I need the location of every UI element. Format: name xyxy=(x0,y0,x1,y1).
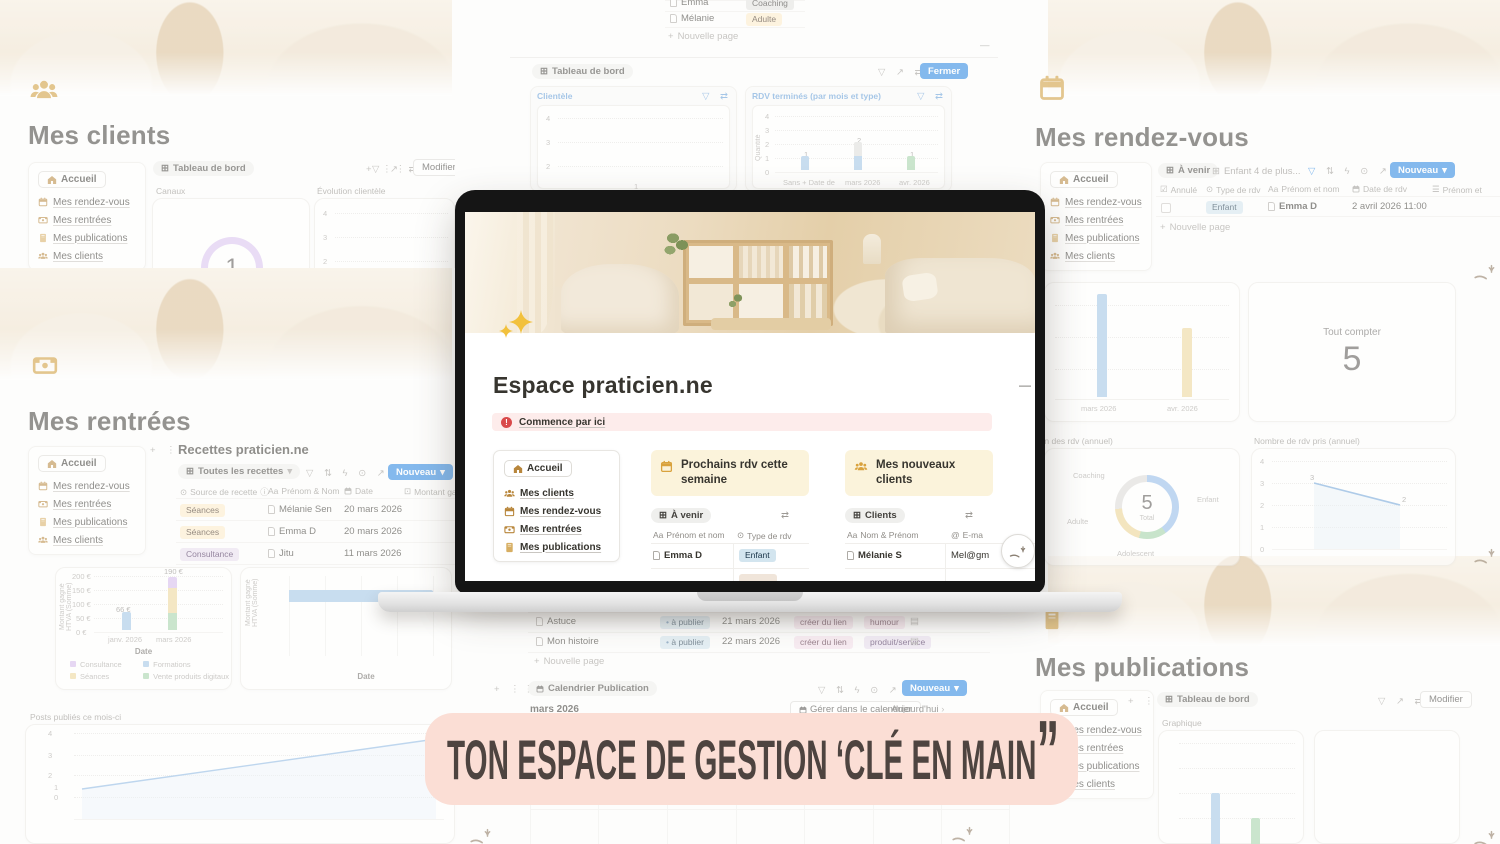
sidebar-item-clients[interactable]: Mes clients xyxy=(38,251,136,262)
y-tick: 1 xyxy=(765,154,769,163)
cover-armchair xyxy=(561,264,679,333)
col-date[interactable]: Date de rdv xyxy=(1352,184,1407,194)
nouveau-button[interactable]: Nouveau▾ xyxy=(902,680,967,696)
sidebar-item-rendez-vous[interactable]: Mes rendez-vous xyxy=(38,481,136,492)
photo-mid-left xyxy=(0,268,452,380)
row-name[interactable]: Jitu xyxy=(268,548,294,559)
checkbox-icon: ☑ xyxy=(1160,184,1168,195)
page-icon xyxy=(847,551,854,560)
doodle-icon xyxy=(1472,824,1498,844)
row-type-tag[interactable]: Enfant xyxy=(739,549,776,562)
page-icon xyxy=(536,617,543,626)
modifier-button[interactable]: Modifier xyxy=(1420,691,1472,708)
row-tag2[interactable]: humour xyxy=(864,616,905,629)
donut-label-adolescent: Adolescent xyxy=(1117,549,1154,558)
bar-seg-formations xyxy=(122,612,131,630)
template-badge xyxy=(1001,534,1035,568)
view-tab-toutes-recettes[interactable]: ⊞Toutes les recettes▾ xyxy=(178,464,300,479)
bar-seg xyxy=(801,156,809,170)
doodle-icon xyxy=(1472,258,1498,284)
alert-icon: ! xyxy=(501,417,512,428)
accueil-button[interactable]: Accueil xyxy=(1050,171,1118,188)
row-name[interactable]: Mon histoire xyxy=(536,636,599,647)
row-date[interactable]: 22 mars 2026 xyxy=(722,636,780,647)
y-tick: 4 xyxy=(1260,457,1264,466)
nav-item-rendez-vous[interactable]: Mes rendez-vous xyxy=(504,506,609,517)
y-axis-label: Quantité xyxy=(755,120,762,176)
page-icon xyxy=(670,0,677,7)
sidebar-card: Accueil Mes rendez-vous Mes rentrées Mes… xyxy=(28,162,146,268)
y-tick: 150 € xyxy=(72,586,91,595)
new-page-row[interactable]: +Nouvelle page xyxy=(1160,222,1230,233)
row-name[interactable]: Mélanie Sen xyxy=(268,504,332,515)
legend-item: Vente produits digitaux xyxy=(143,672,229,681)
table-icon: ⊞ xyxy=(1212,166,1220,177)
page-icon xyxy=(268,527,275,536)
doodle-icon xyxy=(468,822,494,844)
plus-icon: + xyxy=(1160,222,1166,233)
y-tick: 3 xyxy=(1260,479,1264,488)
col-prenom[interactable]: AaPrénom et nom xyxy=(653,530,725,540)
chart-title-posts: Graphique xyxy=(1162,718,1202,728)
sidebar-item-rendez-vous[interactable]: Mes rendez-vous xyxy=(1050,197,1142,208)
new-page-row[interactable]: +Nouvelle page xyxy=(534,656,604,667)
cover-plant2 xyxy=(727,290,749,310)
page-icon xyxy=(268,549,275,558)
clientele-chart-card: Clientèle ▽ ⇄ 4 3 2 1 xyxy=(530,86,737,192)
col-source[interactable]: ⊙Source de recetteⓘ xyxy=(180,486,269,498)
bar-seg xyxy=(907,156,915,170)
x-tick: mars 2026 xyxy=(156,635,191,644)
database-title: Recettes praticien.ne xyxy=(178,442,309,457)
text-icon: Aa xyxy=(847,530,857,540)
y-tick: 2 xyxy=(546,162,550,171)
chart-title-evolution: Évolution clientèle xyxy=(317,186,386,196)
chevron-down-icon: ▾ xyxy=(440,467,445,478)
page-icon xyxy=(1268,202,1275,211)
y-tick: 0 xyxy=(54,793,58,802)
x-axis-label: Date xyxy=(56,647,231,656)
clients-group-icon xyxy=(24,76,64,104)
y-tick: 4 xyxy=(323,209,327,218)
laptop-base-notch xyxy=(697,592,803,601)
chevron-down-icon: ▾ xyxy=(1442,165,1447,176)
row-date[interactable]: 20 mars 2026 xyxy=(344,526,402,537)
col-type[interactable]: ⊙Type de rdv xyxy=(1206,184,1261,195)
evolution-chart-card: 4 3 2 xyxy=(314,198,455,268)
y-tick: 2 xyxy=(765,140,769,149)
y-tick: 0 xyxy=(1260,545,1264,554)
view-tab-more[interactable]: 4 de plus... xyxy=(1254,166,1300,177)
cover-table xyxy=(711,318,831,330)
bar-seg-vente xyxy=(168,613,177,630)
row-source-tag[interactable]: Séances xyxy=(180,504,225,517)
tab-tableau-de-bord[interactable]: ⊞Tableau de bord xyxy=(153,161,254,176)
repartition-chart-card: 5Total Coaching Enfant Adulte Adolescent xyxy=(1044,448,1240,566)
row-tag[interactable]: Adulte xyxy=(746,13,782,26)
accueil-button[interactable]: Accueil xyxy=(38,171,106,188)
modifier-button[interactable]: Modifier xyxy=(413,159,455,176)
donut-center-sub: Total xyxy=(1140,515,1155,522)
x-tick: mars 2026 xyxy=(1081,404,1116,413)
y-tick: 3 xyxy=(323,233,327,242)
callout-commence[interactable]: ! Commence par ici xyxy=(492,413,992,431)
section-title: Mes rendez-vous xyxy=(1035,122,1249,153)
tab-tableau-de-bord[interactable]: ⊞Tableau de bord xyxy=(532,64,633,79)
nouveau-button[interactable]: Nouveau▾ xyxy=(1390,162,1455,178)
row-name[interactable]: Emma D xyxy=(268,526,316,537)
x-tick: Sans + Date de xyxy=(783,178,835,187)
row-name[interactable]: Emma D xyxy=(1268,201,1317,212)
col-prenom2[interactable]: ☰Prénom et xyxy=(1432,184,1482,195)
tab-tableau-de-bord[interactable]: ⊞Tableau de bord xyxy=(1157,692,1258,707)
page-icon xyxy=(653,551,660,560)
rdv-termines-chart-card: RDV terminés (par mois et type) ▽ ⇄ Quan… xyxy=(745,86,952,192)
col-email[interactable]: @E-ma xyxy=(951,530,983,540)
row-name[interactable]: Mélanie xyxy=(670,13,714,24)
board-icon: ⊞ xyxy=(540,66,548,77)
y-tick: 0 xyxy=(765,168,769,177)
chart-filter-icons[interactable]: ▽ ⇄ xyxy=(702,91,732,102)
text-icon: Aa xyxy=(653,530,663,540)
graphique-chart-card xyxy=(1314,730,1460,844)
row-date[interactable]: 20 mars 2026 xyxy=(344,504,402,515)
view-tab-clients[interactable]: ⊞Clients xyxy=(845,508,905,523)
page-icon xyxy=(670,14,677,23)
y-tick: 1 xyxy=(1260,523,1264,532)
section-mes-rentrees: Mes rentrées Accueil Mes rendez-vous Mes… xyxy=(20,398,460,844)
col-type[interactable]: ⊙Type de rdv xyxy=(737,530,792,541)
page-icon xyxy=(268,505,275,514)
chevron-down-icon: ▾ xyxy=(954,683,959,694)
sidebar-item-publications[interactable]: Mes publications xyxy=(1050,233,1142,244)
legend-item: Séances xyxy=(70,672,143,681)
callout-nouveaux-clients[interactable]: Mes nouveaux clients xyxy=(845,450,993,496)
row-source-tag[interactable]: Séances xyxy=(180,526,225,539)
chart-title-rdv-termines: RDV terminés (par mois et type) xyxy=(752,91,881,101)
laptop-screen: Espace praticien.ne — ! Commence par ici… xyxy=(465,212,1035,581)
tout-compter-value: 5 xyxy=(1249,340,1455,379)
bar-posts-2 xyxy=(1251,818,1260,844)
rdv-month-chart-card: 3 2 mars 2026 avr. 2026 xyxy=(1044,282,1240,422)
chart-filter-icons[interactable]: ▽ ⇄ xyxy=(917,91,947,102)
board-icon: ⊞ xyxy=(1165,694,1173,705)
row-name[interactable]: Mélanie S xyxy=(847,550,902,561)
sidebar-item-rendez-vous[interactable]: Mes rendez-vous xyxy=(38,197,136,208)
callout-title: Mes nouveaux clients xyxy=(876,458,984,488)
y-tick: 100 € xyxy=(72,600,91,609)
nb-rdv-chart-card: 4 3 2 1 0 3 2 xyxy=(1251,448,1456,566)
col-date[interactable]: Date xyxy=(344,486,373,496)
photo-top-right xyxy=(1048,0,1500,96)
montant-tva-chart-card: Montant gagné HTVA (Somme) Date xyxy=(240,567,452,690)
row-attachment-icon: ▤ xyxy=(910,616,923,627)
cover-lamp xyxy=(863,234,881,264)
nb-rdv-line xyxy=(1272,457,1449,549)
tab-calendrier-publication[interactable]: Calendrier Publication xyxy=(528,681,657,696)
section-top-center: Emma Coaching Mélanie Adulte +Nouvelle p… xyxy=(490,0,1010,192)
canaux-donut: 1 xyxy=(201,237,263,268)
accueil-button[interactable]: Accueil xyxy=(38,455,106,472)
row-type-tag[interactable]: Enfant xyxy=(1206,201,1243,214)
number-icon: ⊡ xyxy=(404,486,411,497)
accueil-button[interactable]: Accueil xyxy=(504,460,572,477)
y-tick: 4 xyxy=(48,729,52,738)
y-tick: 4 xyxy=(765,112,769,121)
wallet-corner-icon xyxy=(26,352,64,378)
y-tick: 50 € xyxy=(76,614,91,623)
row-date[interactable]: 21 mars 2026 xyxy=(722,616,780,627)
view-tab-a-venir[interactable]: ⊞À venir xyxy=(1158,163,1218,178)
view-options-icon[interactable]: ⇄ xyxy=(781,510,793,521)
section-mes-rendez-vous: Mes rendez-vous Accueil Mes rendez-vous … xyxy=(1032,116,1500,568)
x-tick: janv. 2026 xyxy=(108,635,142,644)
sparkles-icon xyxy=(499,310,535,346)
select-icon: ⊙ xyxy=(180,487,187,498)
row-name[interactable]: Emma xyxy=(670,0,708,8)
row-status-tag[interactable]: • à publier xyxy=(660,636,710,649)
callout-prochains-rdv[interactable]: Prochains rdv cette semaine xyxy=(651,450,809,496)
chart-title-toutes-recettes: Posts publiés ce mois-ci xyxy=(30,712,121,722)
plus-icon: + xyxy=(668,31,674,42)
row-date[interactable]: 11 mars 2026 xyxy=(344,548,401,559)
x-tick: avr. 2026 xyxy=(1167,404,1198,413)
row-checkbox[interactable] xyxy=(1161,203,1171,213)
doodle-icon xyxy=(950,820,976,844)
sidebar-item-clients[interactable]: Mes clients xyxy=(1050,251,1142,262)
collapse-icon[interactable]: — xyxy=(1019,378,1031,392)
y-tick: 4 xyxy=(546,114,550,123)
tout-compter-label: Tout compter xyxy=(1249,327,1455,338)
callout-text[interactable]: Commence par ici xyxy=(519,417,605,428)
view-options-icon[interactable]: ⇄ xyxy=(965,510,977,521)
sidebar-item-clients[interactable]: Mes clients xyxy=(38,535,136,546)
sidebar-card: Accueil Mes rendez-vous Mes rentrées Mes… xyxy=(28,446,146,555)
donut-center-value: 5 xyxy=(1141,492,1152,515)
section-mes-publications: Mes publications Accueil Mes rendez-vous… xyxy=(1032,646,1500,844)
bar-posts-1 xyxy=(1211,793,1220,844)
legend-item: Consultance xyxy=(70,660,143,669)
donut-label-enfant: Enfant xyxy=(1197,495,1219,504)
x-tick: avr. 2026 xyxy=(899,178,930,187)
bar-mars xyxy=(1097,294,1107,398)
minimize-icon[interactable]: — xyxy=(980,40,994,51)
sidebar-item-rentrees[interactable]: Mes rentrées xyxy=(1050,215,1142,226)
toutes-recettes-chart-card: 4 3 2 1 0 xyxy=(25,724,455,844)
x-axis-label: Date xyxy=(281,672,451,681)
section-title: Mes clients xyxy=(28,120,170,151)
cover-plant xyxy=(661,228,691,262)
y-axis-label: Montant gagné HTVA (Somme) xyxy=(59,576,73,638)
cover-shelf xyxy=(683,240,833,326)
repartition-donut: 5Total xyxy=(1115,475,1179,539)
sidebar-item-publications[interactable]: Mes publications xyxy=(38,517,136,528)
row-tag1[interactable]: créer du lien xyxy=(794,636,853,649)
legend-item: Formations xyxy=(143,660,229,669)
montant-gagne-chart-card: Montant gagné HTVA (Somme) 200 € 150 € 1… xyxy=(55,567,232,690)
view-tab-a-venir[interactable]: ⊞À venir xyxy=(651,508,711,523)
fermer-button[interactable]: Fermer xyxy=(920,63,968,79)
col-annule[interactable]: ☑Annulé xyxy=(1160,184,1197,195)
text-icon: Aa xyxy=(1268,184,1278,194)
y-tick: 3 xyxy=(48,751,52,760)
chevron-down-icon: ▾ xyxy=(287,466,292,477)
chart-title-clientele: Clientèle xyxy=(537,91,572,101)
nav-item-publications[interactable]: Mes publications xyxy=(504,542,609,553)
row-email[interactable]: Mel@gm xyxy=(951,550,989,561)
sidebar-item-publications[interactable]: Mes publications xyxy=(38,233,136,244)
view-tab-enfant[interactable]: ⊞Enfant xyxy=(1212,166,1251,177)
posts-chart-card xyxy=(1158,730,1304,844)
canaux-value: 1 xyxy=(225,254,238,268)
sidebar-item-rentrees[interactable]: Mes rentrées xyxy=(38,499,136,510)
row-date[interactable]: 2 avril 2026 11:00 xyxy=(1352,201,1427,212)
canaux-chart-card: 1 xyxy=(152,198,310,268)
bar-avril xyxy=(1182,328,1192,397)
home-nav-card: Accueil Mes clients Mes rendez-vous Mes … xyxy=(493,450,620,562)
donut-label-coaching: Coaching xyxy=(1073,471,1105,480)
accueil-button[interactable]: Accueil xyxy=(1050,699,1118,716)
chart-title-canaux: Canaux xyxy=(156,186,185,196)
tout-compter-card: Tout compter 5 xyxy=(1248,282,1456,422)
y-tick: 1 xyxy=(54,783,58,792)
point-label: 2 xyxy=(1402,495,1406,504)
rollup-icon: ☰ xyxy=(1432,184,1440,195)
title-banner: TON ESPACE DE GESTION ‘CLÉ EN MAIN” xyxy=(425,713,1078,805)
row-name[interactable]: Astuce xyxy=(536,616,576,627)
section-mes-clients: Mes clients Accueil Mes rendez-vous Mes … xyxy=(20,106,455,268)
chart-title-nb-rdv: Nombre de rdv pris (annuel) xyxy=(1254,436,1360,446)
y-tick: 200 € xyxy=(72,572,91,581)
board-icon: ⊞ xyxy=(161,163,169,174)
doodle-icon xyxy=(1472,542,1498,568)
row-tag1[interactable]: créer du lien xyxy=(794,616,853,629)
table-icon: ⊞ xyxy=(853,510,861,521)
nouveau-button[interactable]: Nouveau▾ xyxy=(388,464,453,480)
select-icon: ⊙ xyxy=(1206,184,1213,195)
nav-item-rentrees[interactable]: Mes rentrées xyxy=(504,524,609,535)
photo-top-left xyxy=(0,0,452,96)
page-icon xyxy=(536,637,543,646)
col-nom[interactable]: AaPrénom & Nom xyxy=(268,486,340,496)
col-montant[interactable]: ⊡Montant gag xyxy=(404,486,461,497)
calendar-corner-icon xyxy=(1037,74,1067,102)
section-title: Mes publications xyxy=(1035,652,1249,683)
y-tick: 2 xyxy=(48,771,52,780)
y-tick: 0 € xyxy=(76,628,86,637)
text-icon: Aa xyxy=(268,486,278,496)
row-attachment-icon: ▤ xyxy=(910,636,923,647)
row-name[interactable]: Emma D xyxy=(653,550,702,561)
y-tick: 3 xyxy=(546,138,550,147)
row-tag[interactable]: Coaching xyxy=(746,0,794,10)
y-axis-label: Montant gagné HTVA (Somme) xyxy=(245,578,259,628)
table-icon: ⊞ xyxy=(186,466,194,477)
sidebar-item-rentrees[interactable]: Mes rentrées xyxy=(38,215,136,226)
banner-text: TON ESPACE DE GESTION ‘CLÉ EN MAIN” xyxy=(447,705,1059,814)
bar-seg xyxy=(854,156,862,170)
recettes-line xyxy=(74,729,446,819)
donut-label-adulte: Adulte xyxy=(1067,517,1088,526)
row-source-tag[interactable]: Consultance xyxy=(180,548,239,561)
point-label: 3 xyxy=(1310,473,1314,482)
callout-title: Prochains rdv cette semaine xyxy=(681,458,800,488)
table-icon: ⊞ xyxy=(659,510,667,521)
new-page-row[interactable]: +Nouvelle page xyxy=(668,31,738,42)
y-tick: 3 xyxy=(765,126,769,135)
row-status-tag[interactable]: • à publier xyxy=(660,616,710,629)
select-icon: ⊙ xyxy=(737,530,744,541)
graphique-donut xyxy=(1357,755,1421,819)
email-icon: @ xyxy=(951,530,960,540)
page-canvas: Mes clients Accueil Mes rendez-vous Mes … xyxy=(0,0,1500,844)
row-type-tag-partial[interactable] xyxy=(739,574,777,581)
plus-icon: + xyxy=(534,656,540,667)
page-title: Espace praticien.ne xyxy=(493,372,713,399)
y-tick: 2 xyxy=(1260,501,1264,510)
nav-item-clients[interactable]: Mes clients xyxy=(504,488,609,499)
sidebar-card: Accueil Mes rendez-vous Mes rentrées Mes… xyxy=(1040,162,1152,271)
bar-seg xyxy=(854,142,862,156)
cover-image xyxy=(465,212,1035,333)
bar-seg-seances xyxy=(168,588,177,613)
x-tick: mars 2026 xyxy=(845,178,880,187)
table-icon: ⊞ xyxy=(1166,165,1174,176)
y-tick: 2 xyxy=(323,257,327,266)
col-prenom[interactable]: AaPrénom et nom xyxy=(1268,184,1340,194)
bar-seg-consultance xyxy=(168,577,177,588)
col-nom[interactable]: AaNom & Prénom xyxy=(847,530,919,540)
section-title: Mes rentrées xyxy=(28,406,191,437)
